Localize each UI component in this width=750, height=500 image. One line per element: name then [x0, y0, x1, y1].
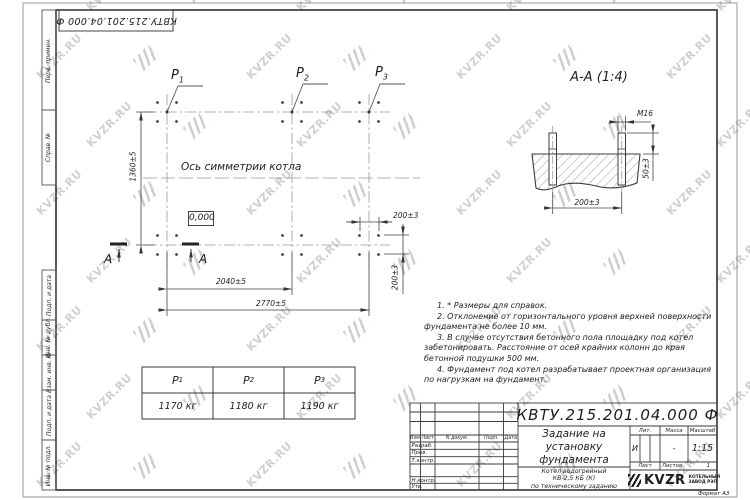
row-prov: Пров. — [412, 450, 428, 456]
side-label-podp-data-2: Подп. и дата — [42, 390, 56, 440]
dim-2770: 2770±5 — [248, 299, 294, 308]
level-mark: 0,000 — [188, 211, 214, 226]
load-point-label-p1: Р1 — [171, 68, 184, 85]
lit-value: И — [630, 435, 640, 462]
row-utv: Утв. — [412, 484, 423, 490]
side-label-inv-podl: Инв. № подл. — [42, 440, 56, 490]
sheets-label: Листов — [662, 463, 682, 469]
company-name: KVZR — [644, 473, 686, 488]
load-table-value-p1: 1170 кг — [142, 393, 213, 419]
sheets-cell: Листов 1 — [662, 463, 714, 469]
load-table-value-p2: 1180 кг — [213, 393, 284, 419]
drawing-sheet: КВТУ.215.201.04.000 Ф Перв. примен. Спра… — [0, 0, 750, 500]
load-table-value-p3: 1190 кг — [284, 393, 355, 419]
section-letter-left: А — [104, 252, 112, 266]
section-letter-right: А — [199, 252, 207, 266]
section-view-title: А-А (1:4) — [555, 70, 643, 85]
dim-bolt-y: 200±3 — [391, 258, 400, 298]
col-list: Лист — [421, 436, 436, 441]
col-izm: Изм. — [410, 436, 421, 441]
note-line: 1. * Размеры для справок. — [424, 301, 716, 312]
col-data: Дата — [504, 436, 519, 441]
col-podp: Подп. — [479, 436, 504, 441]
note-line: 4. Фундамент под котел разрабатывает про… — [424, 365, 716, 386]
load-point-label-p3: Р3 — [375, 65, 388, 82]
side-label-sprav-n: Справ. № — [42, 110, 56, 185]
drawing-title: Задание на установку фундамента — [518, 426, 630, 467]
side-label-inv-dubl: Инв. № дубл. — [42, 320, 56, 355]
row-razrab: Разраб. — [412, 443, 433, 449]
notes: 1. * Размеры для справок. 2. Отклонение … — [424, 301, 716, 386]
lit-label: Лит. — [630, 428, 660, 434]
load-table-header-p1: Р1 — [142, 367, 213, 393]
side-label-perv-primen: Перв. примен. — [42, 10, 56, 110]
top-stamp-text: КВТУ.215.201.04.000 Ф — [56, 15, 177, 26]
load-table-header-p3: Р3 — [284, 367, 355, 393]
sheet-label: Лист — [630, 463, 660, 469]
note-line: 3. В случае отсутствия бетонного пола пл… — [424, 333, 716, 365]
load-point-label-p2: Р2 — [296, 66, 309, 83]
scale-label: Масштаб — [688, 428, 717, 434]
load-table-header-p2: Р2 — [213, 367, 284, 393]
row-nkontr: Н.контр. — [412, 478, 436, 484]
dim-1360: 1360±5 — [129, 147, 138, 187]
dim-2040: 2040±5 — [208, 277, 254, 286]
company-cell: KVZR КОТЕЛЬНЫЙ ЗАВОД РЭП — [631, 470, 717, 490]
format-label: Формат А3 — [698, 491, 729, 497]
dim-200-section: 200±3 — [564, 198, 610, 207]
drawing-subtitle: Котел водогрейный КВ-2,5 КБ (К) по техни… — [518, 467, 630, 491]
kvzr-logo-icon — [628, 474, 641, 487]
sheets-value: 1 — [707, 463, 714, 469]
side-label-vzam-inv: Взам. инв. № — [42, 355, 56, 390]
side-label-podp-data-1: Подп. и дата — [42, 270, 56, 320]
mass-label: Масса — [660, 428, 688, 434]
col-n-dokum: N докум. — [435, 436, 479, 441]
top-stamp: КВТУ.215.201.04.000 Ф — [59, 10, 173, 31]
dim-50: 50±3 — [642, 149, 651, 189]
dim-bolt-x: 200±3 — [393, 211, 418, 220]
scale-value: 1:15 — [688, 435, 717, 462]
doc-number: КВТУ.215.201.04.000 Ф — [518, 403, 717, 426]
note-line: 2. Отклонение от горизонтального уровня … — [424, 312, 716, 333]
company-tagline: КОТЕЛЬНЫЙ ЗАВОД РЭП — [689, 475, 721, 485]
symmetry-axis-label: Ось симметрии котла — [181, 161, 301, 173]
row-tkontr: Т.контр. — [412, 458, 435, 464]
mass-value: - — [660, 435, 688, 462]
dim-m16: М16 — [637, 109, 653, 118]
